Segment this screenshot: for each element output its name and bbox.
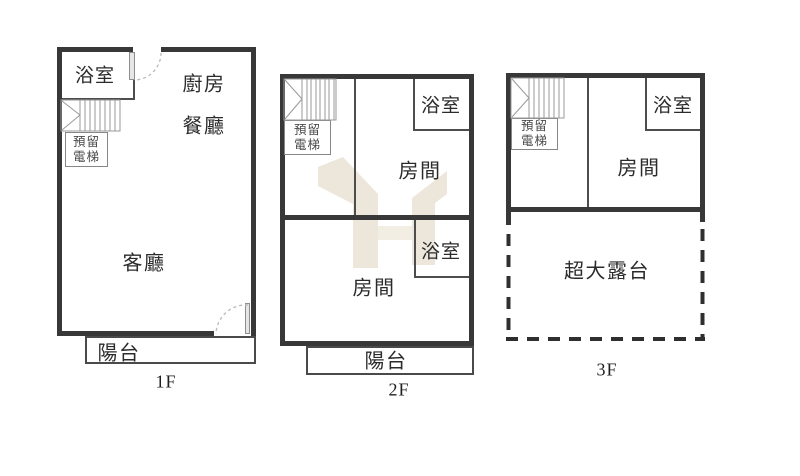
wall-segment: [645, 78, 647, 131]
wall-segment: [645, 129, 700, 131]
wall-segment: [506, 73, 705, 78]
floor-label-3f: 3F: [596, 360, 617, 381]
elevator-label-line2: 電梯: [521, 134, 548, 149]
room-label-bathroom: 浴室: [653, 91, 693, 118]
floorplan-3f: 預留 電梯 浴室 房間 超大露台 3F: [0, 0, 800, 476]
elevator-reserved-box: 預留 電梯: [511, 118, 558, 150]
floorplan-canvas: 預留 電梯 浴室 廚房 餐廳 客廳 陽台 1F 預留 電梯 浴室 房間: [0, 0, 800, 476]
room-label-terrace: 超大露台: [564, 255, 650, 284]
wall-segment: [700, 73, 705, 222]
elevator-label-line1: 預留: [521, 119, 548, 134]
wall-segment: [506, 207, 705, 212]
room-label-room: 房間: [618, 152, 661, 181]
wall-segment: [587, 78, 589, 207]
